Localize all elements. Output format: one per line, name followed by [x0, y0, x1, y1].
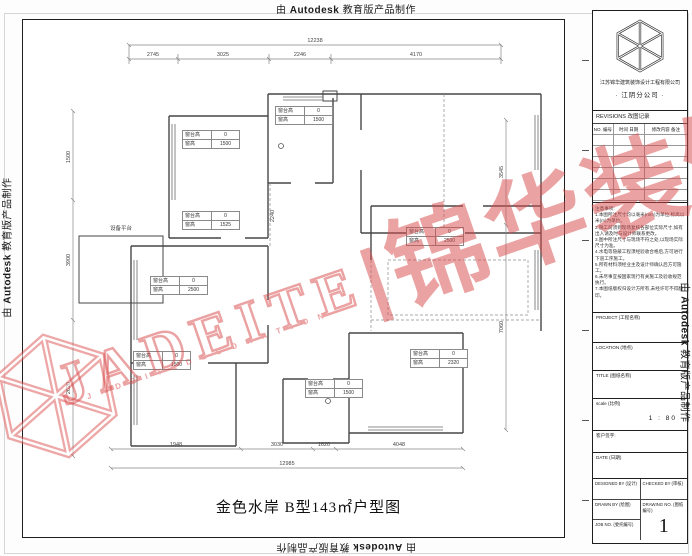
window-spec-table: 窗台高0 窗高1500: [182, 130, 240, 149]
autodesk-edu-text-bottom: 由 Autodesk 教育版产品制作: [0, 541, 692, 556]
field-date: DATE (日期): [593, 453, 687, 479]
field-drawn-by: DRAWN BY (绘图): [593, 500, 640, 521]
rev-empty-cell: [593, 190, 614, 201]
revisions-title: REVISIONS 改图记录: [593, 111, 687, 124]
dim-left-seg: 1500: [66, 151, 72, 163]
window-spec-table: 窗台高0 窗高1500: [305, 379, 363, 398]
edu-suffix: 教育版产品制作: [343, 5, 417, 16]
field-drawing-no: DRAWING NO. (图纸编号) 1: [641, 500, 688, 540]
rev-empty-cell: [593, 157, 614, 168]
revisions-table: NO. 编号 时间 日期 修改内容 备注: [593, 124, 687, 201]
field-designed-by: DESIGNED BY (设计): [593, 479, 640, 500]
window-spec-table: 窗台高0 窗高1500: [133, 351, 191, 370]
window-spec-table: 窗台高0 窗高1500: [275, 106, 333, 125]
edu-prefix: 由: [276, 5, 287, 16]
dim-bottom-seg: 1948: [170, 442, 182, 448]
gutter-tick: [582, 330, 589, 331]
dim-right-seg: 7060: [499, 321, 505, 333]
field-scale: scale (比例) 1 : 80: [593, 399, 687, 431]
gutter-tick: [582, 420, 589, 421]
edu-brand: Autodesk: [290, 5, 340, 16]
signature-grid: DESIGNED BY (设计) DRAWN BY (绘图) JOB NO. (…: [593, 479, 687, 540]
cad-sheet: { "edge_labels": { "prefix": "由", "brand…: [0, 0, 692, 556]
rev-col-header: 修改内容 备注: [645, 124, 687, 135]
company-logo-box: 江苏锦华建筑装饰设计工程有限公司 · 江阴分公司 ·: [593, 11, 687, 111]
autodesk-edu-text-left: 由 Autodesk 教育版产品制作: [0, 148, 14, 348]
company-branch: · 江阴分公司 ·: [593, 89, 687, 99]
notes-section: 注意事项: 1.本图所注尺寸均以毫米(mm)为单位,标高以米(m)为单位。 2.…: [593, 203, 687, 313]
field-client-sign: 客户签字:: [593, 431, 687, 453]
dim-top-seg: 4170: [410, 52, 422, 58]
dim-inner: 2240: [270, 210, 276, 222]
equipment-platform-label: 设备平台: [110, 224, 133, 232]
dimension-text-group: 12238 2745 3025 2246 4170 1948 3030 1620…: [66, 38, 505, 467]
drawing-frame: 12238 2745 3025 2246 4170 1948 3030 1620…: [22, 19, 565, 538]
dim-bottom-total: 12985: [279, 461, 294, 467]
field-project: PROJECT (工程名称): [593, 313, 687, 343]
window-spec-table: 窗台高0 窗高2500: [406, 227, 464, 246]
gutter-tick: [582, 500, 589, 501]
window-spec-table: 窗台高0 窗高1525: [182, 211, 240, 230]
rev-empty-cell: [593, 135, 614, 146]
scale-value: 1 : 80: [649, 415, 677, 422]
floor-plan-svg: 12238 2745 3025 2246 4170 1948 3030 1620…: [23, 20, 564, 537]
rev-col-header: NO. 编号: [593, 124, 614, 135]
autodesk-edu-text-top: 由 Autodesk 教育版产品制作: [0, 1, 692, 16]
rev-empty-cell: [593, 146, 614, 157]
dim-left-seg: 3900: [66, 254, 72, 266]
gutter-tick: [582, 60, 589, 61]
revisions-section: REVISIONS 改图记录 NO. 编号 时间 日期 修改内容 备注: [593, 111, 687, 203]
drawing-title: 金色水岸 B型143㎡户型图: [53, 496, 564, 517]
gutter-tick: [582, 240, 589, 241]
rev-col-header: 时间 日期: [614, 124, 645, 135]
dim-right-seg: 3545: [499, 166, 505, 178]
dim-top-total: 12238: [307, 38, 322, 44]
window-spec-table: 窗台高0 窗高2500: [150, 276, 208, 295]
dim-left-seg: 2620: [66, 382, 72, 394]
company-cube-logo-icon: [611, 17, 669, 75]
dim-bottom-seg: 3030: [271, 442, 283, 448]
company-name: 江苏锦华建筑装饰设计工程有限公司: [593, 79, 687, 86]
rev-empty-cell: [593, 168, 614, 179]
dashed-lines-group: [270, 94, 541, 331]
drawing-number-value: 1: [641, 515, 688, 538]
title-block: 江苏锦华建筑装饰设计工程有限公司 · 江阴分公司 · REVISIONS 改图记…: [592, 10, 688, 544]
dim-top-seg: 3025: [217, 52, 229, 58]
gutter-tick: [582, 150, 589, 151]
autodesk-edu-text-right: 由 Autodesk 教育版产品制作: [679, 253, 692, 453]
dim-bottom-seg: 1620: [318, 442, 330, 448]
field-title: TITLE (图纸名称): [593, 371, 687, 399]
field-job-no: JOB NO. (委托编号): [593, 520, 640, 540]
dim-top-seg: 2745: [147, 52, 159, 58]
rev-empty-cell: [593, 179, 614, 190]
window-spec-table: 窗台高0 窗高2320: [410, 349, 468, 368]
field-checked-by: CHECKED BY (审核): [641, 479, 688, 500]
dim-bottom-seg: 4048: [393, 442, 405, 448]
dim-top-seg: 2246: [294, 52, 306, 58]
field-location: LOCATION (地点): [593, 343, 687, 371]
